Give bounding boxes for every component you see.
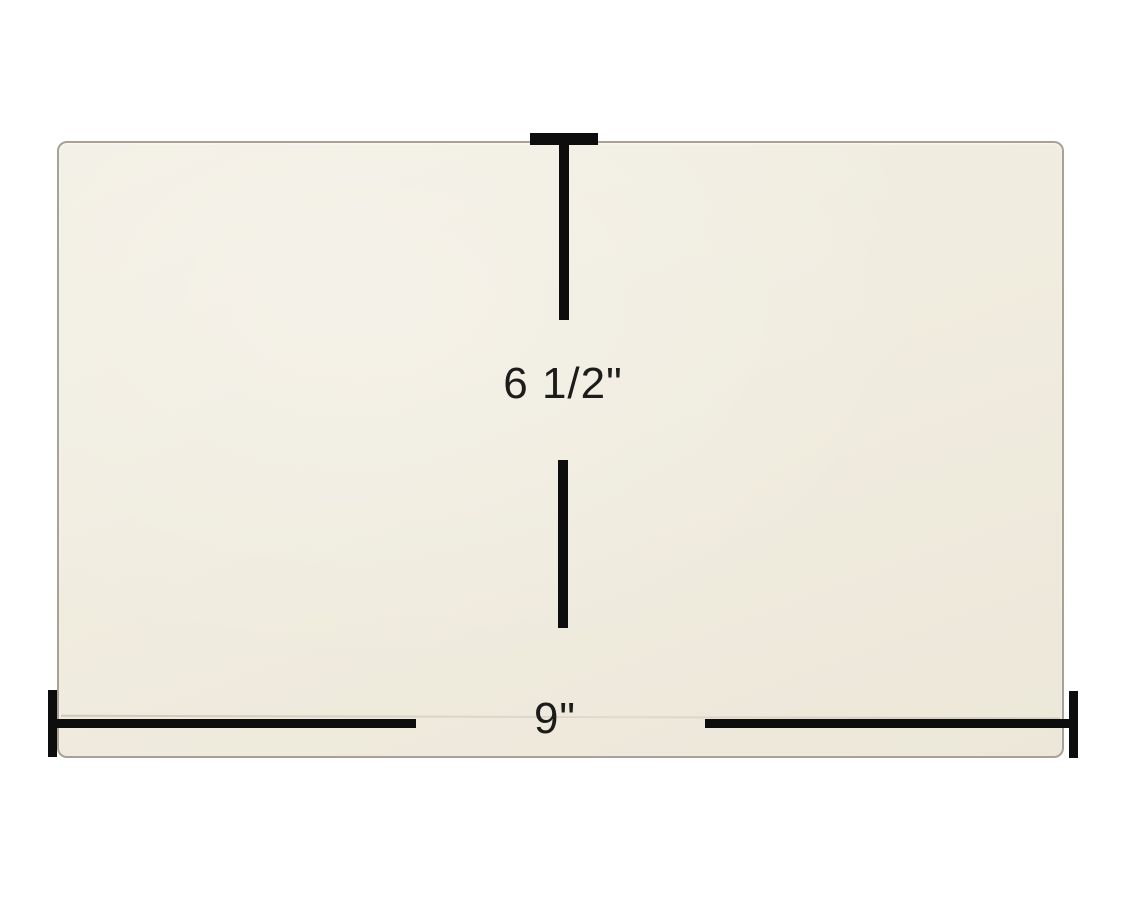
horizontal-dimension-right-endcap: [1069, 691, 1078, 758]
horizontal-dimension-line-left: [52, 719, 416, 728]
vertical-dimension-line-lower: [558, 460, 568, 628]
horizontal-dimension-label: 9": [475, 697, 635, 741]
vertical-dimension-label: 6 1/2": [453, 362, 673, 406]
product-image-canvas: 6 1/2" 9": [0, 0, 1125, 905]
vertical-dimension-line-upper: [559, 145, 569, 320]
horizontal-dimension-line-right: [705, 719, 1073, 728]
vertical-dimension-top-endcap: [530, 133, 598, 145]
